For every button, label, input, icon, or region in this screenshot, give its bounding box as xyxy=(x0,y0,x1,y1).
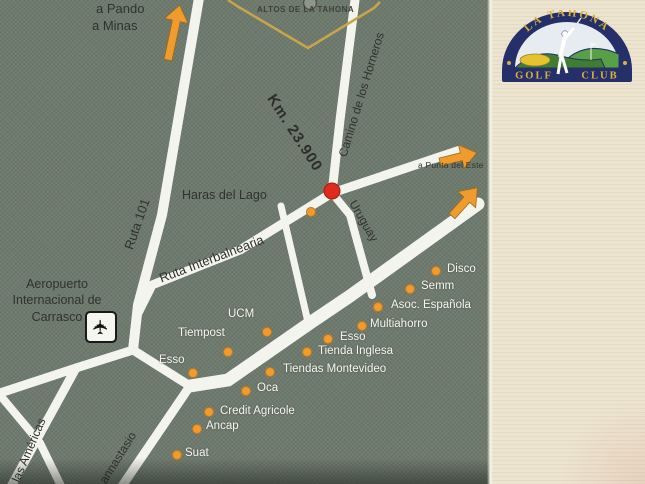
road-avenue-shops xyxy=(190,204,478,386)
road-map: a Pando a Minas ALTOS DE LA TAHONA Km. 2… xyxy=(0,0,492,484)
poi-dot-ancap xyxy=(192,424,202,434)
logo-golf-text: GOLF xyxy=(515,71,553,82)
location-marker xyxy=(324,183,340,199)
poi-label-esso-west: Esso xyxy=(159,354,185,367)
poi-dot-haras-del-lago xyxy=(306,207,316,217)
poi-label-haras-del-lago: Haras del Lago xyxy=(182,189,267,203)
airport-label-line1: Aeropuerto xyxy=(0,276,114,292)
airport-sign: ✈ xyxy=(85,311,117,343)
poi-label-semm: Semm xyxy=(421,280,454,293)
poi-dot-disco xyxy=(431,266,441,276)
airplane-icon: ✈ xyxy=(91,319,111,336)
poi-dot-asoc-espanola xyxy=(373,302,383,312)
poi-dot-multiahorro xyxy=(357,321,367,331)
poi-label-tienda-inglesa: Tienda Inglesa xyxy=(318,345,393,358)
logo-gold-dot-right xyxy=(623,61,627,65)
poi-dot-oca xyxy=(241,386,251,396)
poi-dot-ucm xyxy=(262,327,272,337)
road-to-punta xyxy=(332,150,460,193)
poi-label-tiempost: Tiempost xyxy=(178,327,225,340)
direction-label-minas: a Minas xyxy=(92,19,138,33)
poi-dot-esso-east xyxy=(323,334,333,344)
poi-dot-semm xyxy=(405,284,415,294)
panel-seam xyxy=(487,0,493,484)
altos-emblem-label: ALTOS DE LA TAHONA xyxy=(257,6,354,15)
road-connector xyxy=(281,206,308,322)
poi-label-ucm: UCM xyxy=(228,308,254,321)
poi-dot-esso-west xyxy=(188,368,198,378)
poi-label-asoc-espanola: Asoc. Española xyxy=(391,299,471,312)
map-bottom-shadow xyxy=(0,458,492,484)
logo-bunker xyxy=(520,54,550,66)
airport-label-line2: Internacional de xyxy=(0,292,114,308)
poi-label-disco: Disco xyxy=(447,263,476,276)
map-card: a Pando a Minas ALTOS DE LA TAHONA Km. 2… xyxy=(0,0,645,484)
direction-label-pando: a Pando xyxy=(96,2,144,16)
logo-gold-dot-left xyxy=(507,61,511,65)
poi-dot-tiendas-montevideo xyxy=(265,367,275,377)
logo-club-text: CLUB xyxy=(581,71,618,82)
poi-label-credit-agricole: Credit Agricole xyxy=(220,405,295,418)
poi-dot-tiempost xyxy=(223,347,233,357)
golf-club-logo: LA TAHONA GOLF CLUB xyxy=(501,10,633,86)
side-panel: LA TAHONA GOLF CLUB xyxy=(490,0,645,484)
poi-label-tiendas-montevideo: Tiendas Montevideo xyxy=(283,363,386,376)
poi-dot-credit-agricole xyxy=(204,407,214,417)
poi-label-multiahorro: Multiahorro xyxy=(370,318,428,331)
poi-label-ancap: Ancap xyxy=(206,420,239,433)
poi-label-esso-east: Esso xyxy=(340,331,366,344)
poi-label-oca: Oca xyxy=(257,382,278,395)
poi-dot-tienda-inglesa xyxy=(302,347,312,357)
direction-label-punta-del-este: a Punta del Este xyxy=(418,161,484,170)
